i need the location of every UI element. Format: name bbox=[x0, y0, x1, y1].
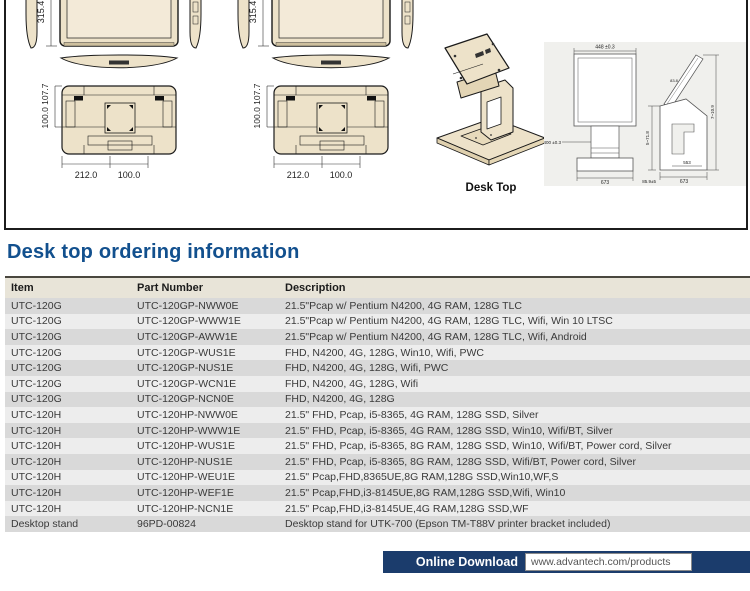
desk-stand-isometric-drawing bbox=[431, 34, 551, 180]
part-number-cell: UTC-120GP-NCN0E bbox=[137, 393, 285, 405]
dim-monitor-height: 315.4 bbox=[248, 1, 258, 24]
table-row: UTC-120H UTC-120HP-WUS1E 21.5" FHD, Pcap… bbox=[5, 438, 750, 454]
part-number-cell: UTC-120HP-WUS1E bbox=[137, 440, 285, 452]
stand-front-screen bbox=[574, 54, 636, 126]
table-row: UTC-120H UTC-120HP-NUS1E 21.5" FHD, Pcap… bbox=[5, 454, 750, 470]
part-number-cell: UTC-120HP-WEF1E bbox=[137, 487, 285, 499]
item-cell: UTC-120G bbox=[5, 331, 137, 343]
dim-monitor-height: 315.4 bbox=[36, 1, 46, 24]
item-cell: Desktop stand bbox=[5, 518, 137, 530]
part-number-cell: UTC-120GP-WCN1E bbox=[137, 378, 285, 390]
description-cell: FHD, N4200, 4G, 128G, Wifi, PWC bbox=[285, 362, 750, 374]
part-number-cell: UTC-120GP-NUS1E bbox=[137, 362, 285, 374]
description-cell: 21.5" FHD, Pcap, i5-8365, 4G RAM, 128G S… bbox=[285, 425, 750, 437]
table-row: UTC-120H UTC-120HP-NWW0E 21.5" FHD, Pcap… bbox=[5, 407, 750, 423]
table-row: UTC-120G UTC-120GP-WUS1E FHD, N4200, 4G,… bbox=[5, 345, 750, 361]
dim-stand-side-inner-bottom: 553 bbox=[683, 160, 691, 165]
online-download-label: Online Download bbox=[416, 555, 518, 569]
table-row: UTC-120H UTC-120HP-WEU1E 21.5" Pcap,FHD,… bbox=[5, 470, 750, 486]
item-cell: UTC-120H bbox=[5, 487, 137, 499]
item-cell: UTC-120H bbox=[5, 425, 137, 437]
monitor-dimension-drawing-2: 315.4 100.0 107.7 212.0 100.0 bbox=[226, 0, 438, 192]
dim-bottom-width-2: 100.0 bbox=[118, 170, 141, 180]
stand-front-base bbox=[577, 158, 633, 171]
description-cell: 21.5" FHD, Pcap, i5-8365, 4G RAM, 128G S… bbox=[285, 409, 750, 421]
item-cell: UTC-120H bbox=[5, 440, 137, 452]
dim-stand-side-left: 5~71.8 bbox=[645, 131, 650, 145]
item-cell: UTC-120H bbox=[5, 409, 137, 421]
item-cell: UTC-120H bbox=[5, 503, 137, 515]
table-row: UTC-120G UTC-120GP-NUS1E FHD, N4200, 4G,… bbox=[5, 360, 750, 376]
part-number-cell: UTC-120GP-WWW1E bbox=[137, 315, 285, 327]
dim-bottom-width-1: 212.0 bbox=[287, 170, 310, 180]
item-cell: UTC-120G bbox=[5, 300, 137, 312]
item-cell: UTC-120H bbox=[5, 456, 137, 468]
dim-stand-side-bottom: 673 bbox=[680, 179, 689, 185]
desk-stand-dimension-drawings: 448 ±0.3 400 ±0.3 673 83.8 5~71.8 7~10.9… bbox=[544, 42, 746, 186]
part-number-cell: UTC-120GP-WUS1E bbox=[137, 347, 285, 359]
dim-stand-side-right: 7~10.9 bbox=[710, 105, 715, 119]
dim-bottom-width-1: 212.0 bbox=[75, 170, 98, 180]
item-cell: UTC-120G bbox=[5, 393, 137, 405]
dim-vesa-vertical: 100.0 107.7 bbox=[40, 83, 50, 128]
part-number-cell: UTC-120HP-NUS1E bbox=[137, 456, 285, 468]
monitor-dimension-drawing-1: 315.4 100.0 107.7 212.0 100.0 bbox=[14, 0, 226, 192]
part-number-cell: UTC-120GP-AWW1E bbox=[137, 331, 285, 343]
part-number-cell: UTC-120HP-WWW1E bbox=[137, 425, 285, 437]
download-url-box[interactable]: www.advantech.com/products bbox=[525, 553, 692, 571]
table-row: UTC-120G UTC-120GP-NCN0E FHD, N4200, 4G,… bbox=[5, 392, 750, 408]
table-body: UTC-120G UTC-120GP-NWW0E 21.5"Pcap w/ Pe… bbox=[5, 298, 750, 532]
description-cell: FHD, N4200, 4G, 128G, Win10, Wifi, PWC bbox=[285, 347, 750, 359]
table-row: UTC-120H UTC-120HP-WWW1E 21.5" FHD, Pcap… bbox=[5, 423, 750, 439]
column-header-description: Description bbox=[285, 282, 750, 294]
part-number-cell: UTC-120HP-NWW0E bbox=[137, 409, 285, 421]
ordering-table: Item Part Number Description UTC-120G UT… bbox=[5, 276, 750, 532]
description-cell: 21.5"Pcap w/ Pentium N4200, 4G RAM, 128G… bbox=[285, 300, 750, 312]
table-row: Desktop stand 96PD-00824 Desktop stand f… bbox=[5, 516, 750, 532]
dim-bottom-width-2: 100.0 bbox=[330, 170, 353, 180]
description-cell: FHD, N4200, 4G, 128G, Wifi bbox=[285, 378, 750, 390]
stand-vesa-plate bbox=[445, 34, 509, 84]
dim-stand-front-bottom: 673 bbox=[601, 180, 610, 186]
table-row: UTC-120G UTC-120GP-NWW0E 21.5"Pcap w/ Pe… bbox=[5, 298, 750, 314]
item-cell: UTC-120G bbox=[5, 315, 137, 327]
description-cell: 21.5"Pcap w/ Pentium N4200, 4G RAM, 128G… bbox=[285, 331, 750, 343]
description-cell: FHD, N4200, 4G, 128G bbox=[285, 393, 750, 405]
table-row: UTC-120G UTC-120GP-AWW1E 21.5"Pcap w/ Pe… bbox=[5, 329, 750, 345]
part-number-cell: 96PD-00824 bbox=[137, 518, 285, 530]
part-number-cell: UTC-120GP-NWW0E bbox=[137, 300, 285, 312]
item-cell: UTC-120H bbox=[5, 471, 137, 483]
description-cell: 21.5" Pcap,FHD,i3-8145UE,4G RAM,128G SSD… bbox=[285, 503, 750, 515]
part-number-cell: UTC-120HP-NCN1E bbox=[137, 503, 285, 515]
column-header-part-number: Part Number bbox=[137, 282, 285, 294]
table-row: UTC-120H UTC-120HP-NCN1E 21.5" Pcap,FHD,… bbox=[5, 501, 750, 517]
table-row: UTC-120G UTC-120GP-WWW1E 21.5"Pcap w/ Pe… bbox=[5, 314, 750, 330]
table-row: UTC-120G UTC-120GP-WCN1E FHD, N4200, 4G,… bbox=[5, 376, 750, 392]
dim-stand-side-angle: 83.8 bbox=[670, 78, 679, 83]
description-cell: 21.5" Pcap,FHD,i3-8145UE,8G RAM,128G SSD… bbox=[285, 487, 750, 499]
description-cell: 21.5" FHD, Pcap, i5-8365, 8G RAM, 128G S… bbox=[285, 456, 750, 468]
page-title: Desk top ordering information bbox=[7, 241, 299, 264]
desk-stand-caption: Desk Top bbox=[431, 182, 551, 194]
item-cell: UTC-120G bbox=[5, 378, 137, 390]
table-row: UTC-120H UTC-120HP-WEF1E 21.5" Pcap,FHD,… bbox=[5, 485, 750, 501]
column-header-item: Item bbox=[5, 282, 137, 294]
description-cell: 21.5"Pcap w/ Pentium N4200, 4G RAM, 128G… bbox=[285, 315, 750, 327]
dimension-drawings-panel: 315.4 100.0 107.7 212.0 100.0 bbox=[4, 0, 748, 230]
online-download-bar: Online Download www.advantech.com/produc… bbox=[383, 551, 750, 573]
description-cell: Desktop stand for UTK-700 (Epson TM-T88V… bbox=[285, 518, 750, 530]
dim-stand-front-top: 448 ±0.3 bbox=[595, 45, 615, 51]
table-header-row: Item Part Number Description bbox=[5, 276, 750, 298]
dim-stand-side-bottom-left: 85.9±5 bbox=[642, 179, 656, 184]
dim-vesa-vertical: 100.0 107.7 bbox=[252, 83, 262, 128]
description-cell: 21.5" FHD, Pcap, i5-8365, 8G RAM, 128G S… bbox=[285, 440, 750, 452]
item-cell: UTC-120G bbox=[5, 362, 137, 374]
description-cell: 21.5" Pcap,FHD,8365UE,8G RAM,128G SSD,Wi… bbox=[285, 471, 750, 483]
dim-stand-front-left: 400 ±0.3 bbox=[544, 140, 562, 145]
part-number-cell: UTC-120HP-WEU1E bbox=[137, 471, 285, 483]
item-cell: UTC-120G bbox=[5, 347, 137, 359]
